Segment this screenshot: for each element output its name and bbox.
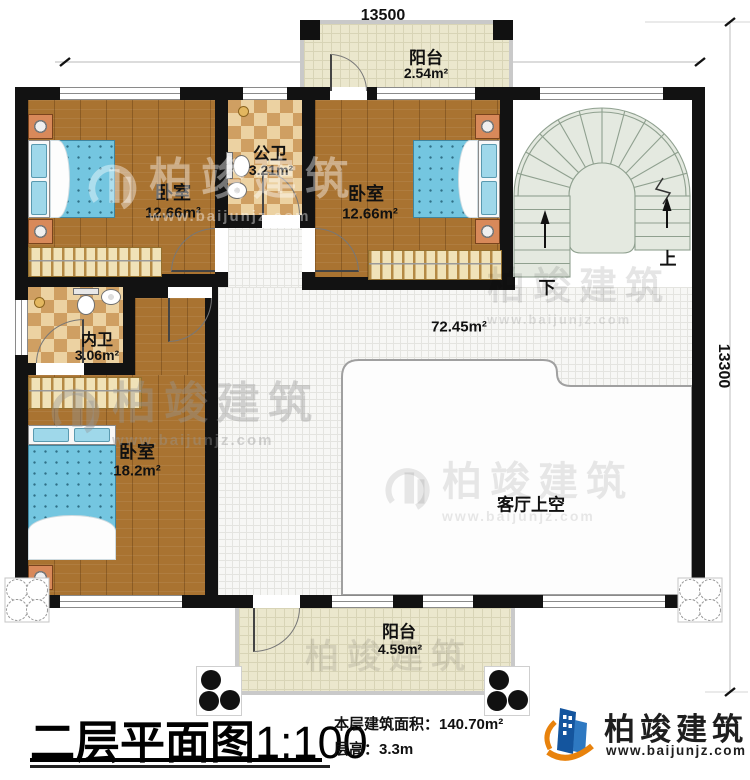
dimension-right-label: 13300 <box>714 344 732 389</box>
title-underline <box>30 758 322 762</box>
room-area-bedroom1: 12.66m² <box>145 205 201 222</box>
closet-bedroom3 <box>28 377 142 409</box>
floor-height-text: 层高：3.3m <box>334 738 413 759</box>
door-opening <box>302 228 315 272</box>
nightstand <box>28 114 53 139</box>
window <box>243 87 287 100</box>
wall <box>692 87 705 608</box>
closet-bedroom2 <box>368 250 502 280</box>
title-underline <box>30 765 330 768</box>
room-label-public-bath: 公卫 <box>253 140 287 165</box>
window <box>15 300 28 355</box>
window <box>377 87 475 100</box>
shower-symbol <box>34 297 45 308</box>
nightstand <box>475 219 500 244</box>
floor-plan-canvas: 阳台 2.54m² 卧室 12.66m² 公卫 3.21m² 卧室 12.66m… <box>0 0 750 780</box>
stair-up-label: 上 <box>660 245 677 270</box>
window <box>332 595 393 608</box>
room-label-bedroom1: 卧室 <box>155 179 191 205</box>
toilet-symbol <box>73 288 99 295</box>
brand-logo-icon <box>540 702 600 762</box>
dimension-top-label: 13500 <box>361 7 406 25</box>
toilet-symbol <box>77 295 95 315</box>
pillow <box>74 428 110 442</box>
stair-down-label: 下 <box>539 274 556 299</box>
brand-website: www.baijunjz.com <box>606 743 747 758</box>
room-area-bedroom2: 12.66m² <box>342 206 398 223</box>
wall <box>123 287 135 375</box>
room-label-living-void: 客厅上空 <box>497 491 565 516</box>
room-area-bedroom3: 18.2m² <box>113 463 161 480</box>
door-opening <box>168 287 212 298</box>
column-cluster <box>484 666 530 716</box>
pillow <box>33 428 69 442</box>
door-opening <box>36 363 84 375</box>
window <box>60 595 182 608</box>
room-area-hall: 72.45m² <box>431 319 487 336</box>
pillow <box>481 181 497 215</box>
room-label-balcony-bottom: 阳台 <box>382 618 416 643</box>
pillow <box>481 144 497 178</box>
quatrefoil-column <box>677 577 723 623</box>
quatrefoil-column <box>4 577 50 623</box>
toilet-symbol <box>226 152 233 179</box>
door-opening <box>253 595 300 608</box>
room-label-bedroom2: 卧室 <box>348 180 384 206</box>
room-label-bedroom3: 卧室 <box>119 438 155 464</box>
toilet-symbol <box>233 155 250 177</box>
pillow <box>31 144 47 178</box>
floor-area-text: 本层建筑面积：140.70m² <box>334 713 503 734</box>
nightstand <box>28 219 53 244</box>
window <box>540 87 663 100</box>
door-opening <box>215 228 228 272</box>
closet-bedroom1 <box>28 247 162 277</box>
sink-symbol <box>101 289 121 305</box>
window <box>543 595 665 608</box>
window <box>60 87 180 100</box>
nightstand <box>475 114 500 139</box>
bed-blanket <box>458 140 478 218</box>
wall <box>205 287 218 608</box>
room-area-balcony-bottom: 4.59m² <box>378 641 422 657</box>
sink-symbol <box>227 182 247 199</box>
pillow <box>31 181 47 215</box>
shower-symbol <box>238 106 249 117</box>
room-area-private-bath: 3.06m² <box>75 347 119 363</box>
room-area-public-bath: 3.21m² <box>249 162 293 178</box>
room-area-balcony-top: 2.54m² <box>404 65 448 81</box>
window <box>423 595 473 608</box>
door-opening <box>262 215 300 228</box>
bed-blanket <box>28 515 116 560</box>
